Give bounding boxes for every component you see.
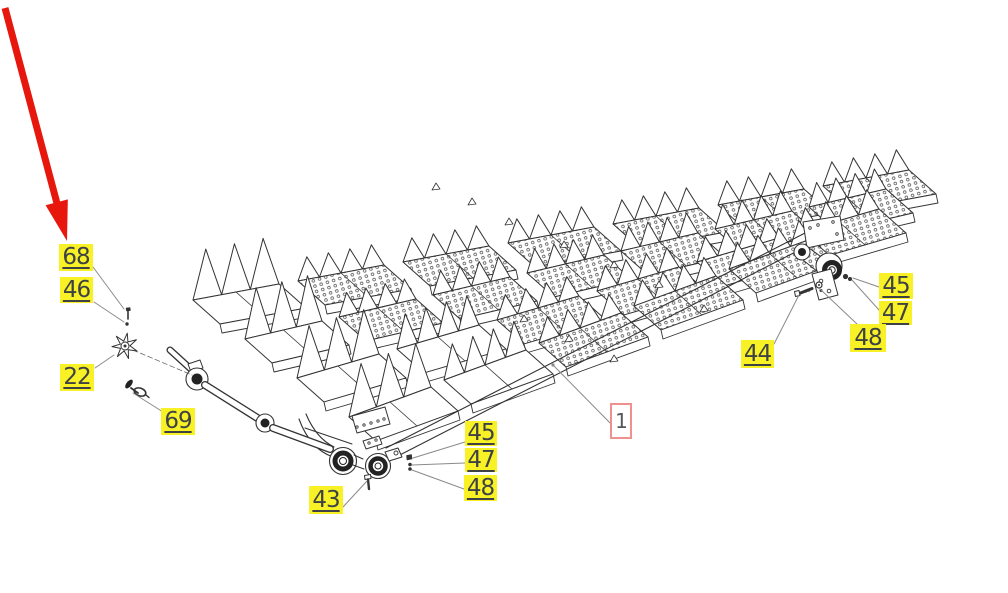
callout-68[interactable]: 68 xyxy=(59,244,93,271)
callout-43[interactable]: 43 xyxy=(309,486,343,514)
callout-label: 47 xyxy=(882,302,909,325)
callout-48-left[interactable]: 48 xyxy=(464,475,497,501)
callout-label: 22 xyxy=(63,366,90,389)
callout-labels: 6846226943454748444547481 xyxy=(0,0,1008,593)
callout-69[interactable]: 69 xyxy=(161,408,195,435)
callout-label: 45 xyxy=(467,422,494,445)
callout-46[interactable]: 46 xyxy=(60,277,93,303)
callout-label: 48 xyxy=(467,477,494,500)
callout-label: 43 xyxy=(312,489,339,512)
diagram-canvas: 6846226943454748444547481 xyxy=(0,0,1008,593)
callout-label: 47 xyxy=(467,449,494,472)
callout-label: 44 xyxy=(744,343,771,366)
callout-45-right[interactable]: 45 xyxy=(879,273,913,299)
callout-44[interactable]: 44 xyxy=(741,340,774,368)
callout-1: 1 xyxy=(610,403,632,439)
callout-label: 1 xyxy=(615,411,627,431)
callout-label: 46 xyxy=(63,279,90,302)
callout-47-right[interactable]: 47 xyxy=(879,301,912,325)
callout-label: 45 xyxy=(882,275,909,298)
callout-22[interactable]: 22 xyxy=(60,364,94,391)
callout-47-left[interactable]: 47 xyxy=(465,448,497,472)
callout-label: 68 xyxy=(62,246,89,269)
callout-label: 48 xyxy=(854,327,881,350)
callout-48-right[interactable]: 48 xyxy=(850,324,886,352)
callout-45-left[interactable]: 45 xyxy=(465,421,497,446)
callout-label: 69 xyxy=(164,410,191,433)
